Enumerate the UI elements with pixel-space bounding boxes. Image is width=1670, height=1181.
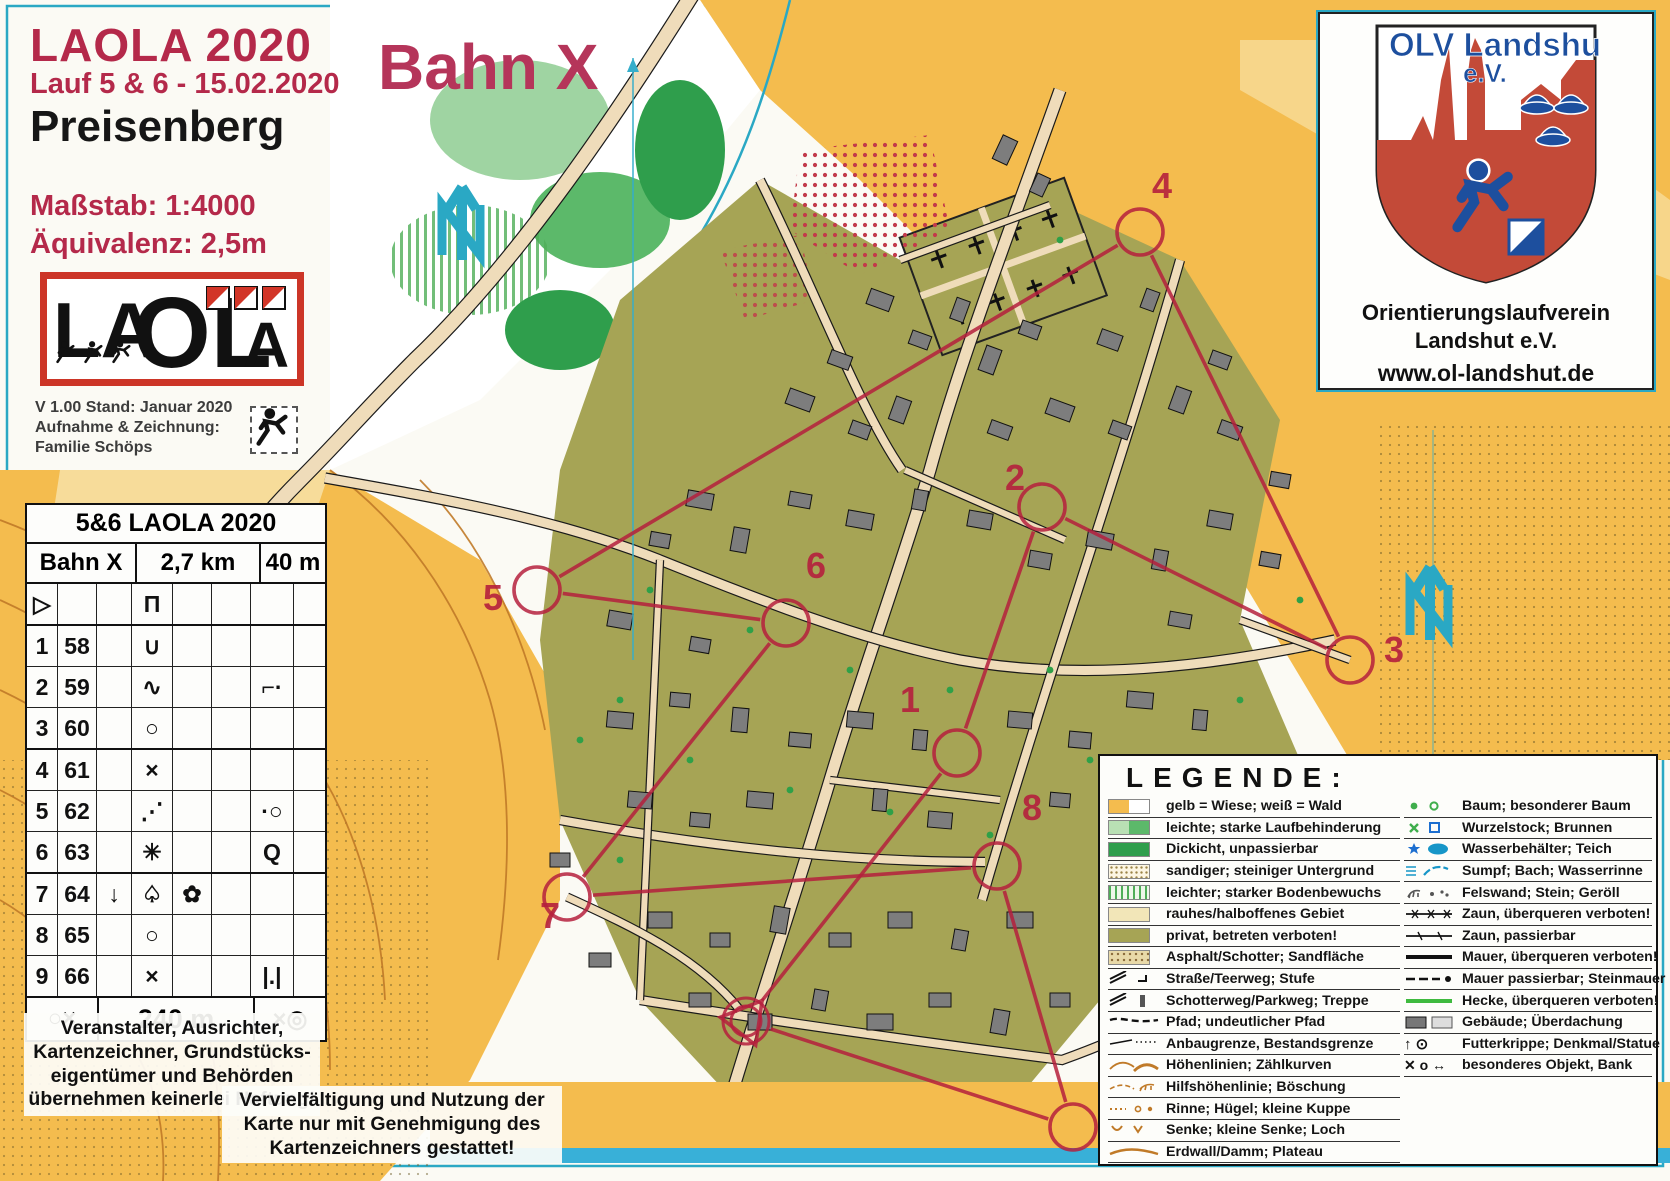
ln-zaunp-icon	[1404, 928, 1462, 944]
legend-item: Sumpf; Bach; Wasserrinne	[1404, 861, 1652, 883]
map-sheet: 123456789 LAOLA 2020 Lauf 5 & 6 - 15.02.…	[0, 0, 1670, 1181]
ln-zaunv-icon	[1404, 906, 1462, 922]
legend-item: Baum; besonderer Baum	[1404, 796, 1652, 818]
card-control-row: 764↓♤✿	[27, 874, 325, 915]
legend-item: Höhenlinien; Zählkurven	[1108, 1055, 1400, 1077]
legend-item: leichte; starke Laufbehinderung	[1108, 818, 1400, 840]
card-control-row: 259∿⌐·	[27, 667, 325, 708]
legend-label: Gebäude; Überdachung	[1462, 1014, 1623, 1030]
legend-item: Straße/Teerweg; Stufe	[1108, 969, 1400, 991]
card-control-row: 360○	[27, 708, 325, 750]
legend-item: Zaun, überqueren verboten!	[1404, 904, 1652, 926]
legend-item: Senke; kleine Senke; Loch	[1108, 1120, 1400, 1142]
legend-label: Pfad; undeutlicher Pfad	[1166, 1014, 1325, 1030]
legend-label: Asphalt/Schotter; Sandfläche	[1166, 949, 1364, 965]
legend-label: Mauer, überqueren verboten!	[1462, 949, 1658, 965]
map-equivalence: Äquivalenz: 2,5m	[30, 226, 590, 264]
legend-item: Pfad; undeutlicher Pfad	[1108, 1012, 1400, 1034]
ln-hilfs-icon	[1108, 1079, 1166, 1095]
laola-logo: LA OL A	[40, 272, 304, 386]
ln-strasse-icon	[1108, 971, 1166, 987]
club-url: www.ol-landshut.de	[1320, 360, 1652, 387]
pt-sumpf-icon	[1404, 863, 1462, 879]
legend-item: rauhes/halboffenes Gebiet	[1108, 904, 1400, 926]
card-control-row: 663✳Q	[27, 832, 325, 874]
card-course: Bahn X	[27, 544, 137, 582]
svg-text:A: A	[243, 309, 289, 379]
version-block: V 1.00 Stand: Januar 2020 Aufnahme & Zei…	[35, 398, 335, 458]
legend-item: Wasserbehälter; Teich	[1404, 839, 1652, 861]
course-name: Bahn X	[378, 30, 598, 104]
map-legend: LEGENDE: gelb = Wiese; weiß = Waldleicht…	[1098, 754, 1658, 1166]
pt-fels-icon	[1404, 885, 1462, 901]
control-flag-icons	[207, 287, 285, 309]
legend-left-column: gelb = Wiese; weiß = Waldleichte; starke…	[1108, 796, 1400, 1163]
legend-label: Hecke, überqueren verboten!	[1462, 993, 1658, 1009]
copyright-note: Vervielfältigung und Nutzung der Karte n…	[222, 1086, 562, 1163]
legend-right-column: Baum; besonderer BaumWurzelstock; Brunne…	[1404, 796, 1652, 1163]
legend-label: Senke; kleine Senke; Loch	[1166, 1122, 1345, 1138]
card-control-row: 966×|.|	[27, 956, 325, 998]
ln-schotter-icon	[1108, 993, 1166, 1009]
legend-item: Gebäude; Überdachung	[1404, 1012, 1652, 1034]
control-number-1: 1	[900, 679, 920, 720]
card-rows: ▷Π158∪259∿⌐·360○461×562⋰·○663✳Q764↓♤✿865…	[27, 584, 325, 998]
legend-item: Rinne; Hügel; kleine Kuppe	[1108, 1098, 1400, 1120]
place-name: Preisenberg	[30, 101, 590, 154]
legend-label: leichter; starker Bodenbewuchs	[1166, 885, 1381, 901]
club-org-line1: Orientierungslaufverein	[1320, 299, 1652, 327]
legend-label: Wurzelstock; Brunnen	[1462, 820, 1612, 836]
legend-item: sandiger; steiniger Untergrund	[1108, 861, 1400, 883]
control-number-3: 3	[1384, 629, 1404, 670]
control-number-8: 8	[1022, 787, 1042, 828]
club-crest: OLV Landshut e.V.	[1371, 20, 1601, 288]
control-number-4: 4	[1152, 165, 1172, 206]
crest-control-flag	[1509, 220, 1543, 254]
ln-hecke-icon	[1404, 993, 1462, 1009]
legend-label: Felswand; Stein; Geröll	[1462, 885, 1620, 901]
club-box: OLV Landshut e.V. Orientierungslaufverei…	[1318, 12, 1654, 390]
club-org-line2: Landshut e.V.	[1320, 327, 1652, 355]
legend-label: Anbaugrenze, Bestandsgrenze	[1166, 1036, 1373, 1052]
legend-label: sandiger; steiniger Untergrund	[1166, 863, 1374, 879]
legend-title: LEGENDE:	[1126, 762, 1656, 794]
legend-label: leichte; starke Laufbehinderung	[1166, 820, 1381, 836]
ln-rinne-icon	[1108, 1101, 1166, 1117]
card-control-row: 461×	[27, 750, 325, 791]
card-start-row: ▷Π	[27, 584, 325, 626]
card-control-row: 158∪	[27, 626, 325, 667]
ln-hoehe-icon	[1108, 1057, 1166, 1073]
pt-wurzel-icon	[1404, 820, 1462, 836]
card-length: 2,7 km	[137, 544, 261, 582]
legend-label: Schotterweg/Parkweg; Treppe	[1166, 993, 1369, 1009]
legend-label: Mauer passierbar; Steinmauer	[1462, 971, 1665, 987]
legend-label: Dickicht, unpassierbar	[1166, 841, 1318, 857]
ln-pfad-icon	[1108, 1014, 1166, 1030]
ln-erdwall-icon	[1108, 1144, 1166, 1160]
legend-label: Baum; besonderer Baum	[1462, 798, 1631, 814]
sw-boden-icon	[1108, 885, 1166, 900]
legend-item: Felswand; Stein; Geröll	[1404, 882, 1652, 904]
legend-label: Wasserbehälter; Teich	[1462, 841, 1612, 857]
legend-item: Hilfshöhenlinie; Böschung	[1108, 1077, 1400, 1099]
legend-item: Zaun, passierbar	[1404, 926, 1652, 948]
legend-item: Asphalt/Schotter; Sandfläche	[1108, 947, 1400, 969]
card-header: Bahn X 2,7 km 40 m	[27, 544, 325, 584]
ln-mauerv-icon	[1404, 949, 1462, 965]
runner-stamp-icon	[250, 406, 298, 454]
sw-sand-icon	[1108, 864, 1166, 879]
svg-text:e.V.: e.V.	[1463, 58, 1507, 88]
legend-item: Mauer, überqueren verboten!	[1404, 947, 1652, 969]
pt-gebaeude-icon	[1404, 1014, 1462, 1030]
legend-label: privat, betreten verboten!	[1166, 928, 1337, 944]
sw-privat-icon	[1108, 928, 1166, 943]
legend-item: Mauer passierbar; Steinmauer	[1404, 969, 1652, 991]
legend-label: Rinne; Hügel; kleine Kuppe	[1166, 1101, 1350, 1117]
legend-item: Schotterweg/Parkweg; Treppe	[1108, 990, 1400, 1012]
legend-label: Zaun, überqueren verboten!	[1462, 906, 1650, 922]
legend-label: Höhenlinien; Zählkurven	[1166, 1057, 1332, 1073]
sw-asphalt-icon	[1108, 950, 1166, 965]
ln-mauerp-icon	[1404, 971, 1462, 987]
sw-wiese-icon	[1108, 799, 1166, 814]
card-climb: 40 m	[261, 544, 325, 582]
legend-item: Dickicht, unpassierbar	[1108, 839, 1400, 861]
control-description-card: 5&6 LAOLA 2020 Bahn X 2,7 km 40 m ▷Π158∪…	[25, 503, 327, 1042]
sw-rauh-icon	[1108, 907, 1166, 922]
legend-label: Zaun, passierbar	[1462, 928, 1576, 944]
sw-lauf-icon	[1108, 820, 1166, 835]
legend-item: Erdwall/Damm; Plateau	[1108, 1142, 1400, 1164]
legend-label: Sumpf; Bach; Wasserrinne	[1462, 863, 1643, 879]
pt-krippe-icon: ↑ ⊙	[1404, 1035, 1462, 1053]
legend-item: leichter; starker Bodenbewuchs	[1108, 882, 1400, 904]
legend-item: Wurzelstock; Brunnen	[1404, 818, 1652, 840]
legend-label: besonderes Objekt, Bank	[1462, 1057, 1632, 1073]
ln-senke-icon	[1108, 1122, 1166, 1138]
pt-wasser-icon	[1404, 841, 1462, 857]
legend-label: gelb = Wiese; weiß = Wald	[1166, 798, 1342, 814]
legend-label: Hilfshöhenlinie; Böschung	[1166, 1079, 1346, 1095]
legend-item: Hecke, überqueren verboten!	[1404, 990, 1652, 1012]
legend-item: Anbaugrenze, Bestandsgrenze	[1108, 1034, 1400, 1056]
control-number-2: 2	[1005, 457, 1025, 498]
pt-baum-icon	[1404, 798, 1462, 814]
control-number-5: 5	[483, 577, 503, 618]
sw-dickicht-icon	[1108, 842, 1166, 857]
card-control-row: 865○	[27, 915, 325, 956]
card-title: 5&6 LAOLA 2020	[27, 505, 325, 544]
legend-item: ✕ o ↔besonderes Objekt, Bank	[1404, 1055, 1652, 1077]
map-scale: Maßstab: 1:4000	[30, 188, 590, 226]
legend-item: ↑ ⊙Futterkrippe; Denkmal/Statue	[1404, 1034, 1652, 1056]
legend-item: gelb = Wiese; weiß = Wald	[1108, 796, 1400, 818]
legend-label: Futterkrippe; Denkmal/Statue	[1462, 1036, 1660, 1052]
card-control-row: 562⋰·○	[27, 791, 325, 832]
legend-item: privat, betreten verboten!	[1108, 926, 1400, 948]
legend-label: rauhes/halboffenes Gebiet	[1166, 906, 1344, 922]
legend-label: Straße/Teerweg; Stufe	[1166, 971, 1315, 987]
legend-label: Erdwall/Damm; Plateau	[1166, 1144, 1323, 1160]
pt-objekt-icon: ✕ o ↔	[1404, 1057, 1462, 1074]
ln-anbau-icon	[1108, 1036, 1166, 1052]
control-number-6: 6	[806, 545, 826, 586]
control-number-7: 7	[540, 895, 560, 936]
